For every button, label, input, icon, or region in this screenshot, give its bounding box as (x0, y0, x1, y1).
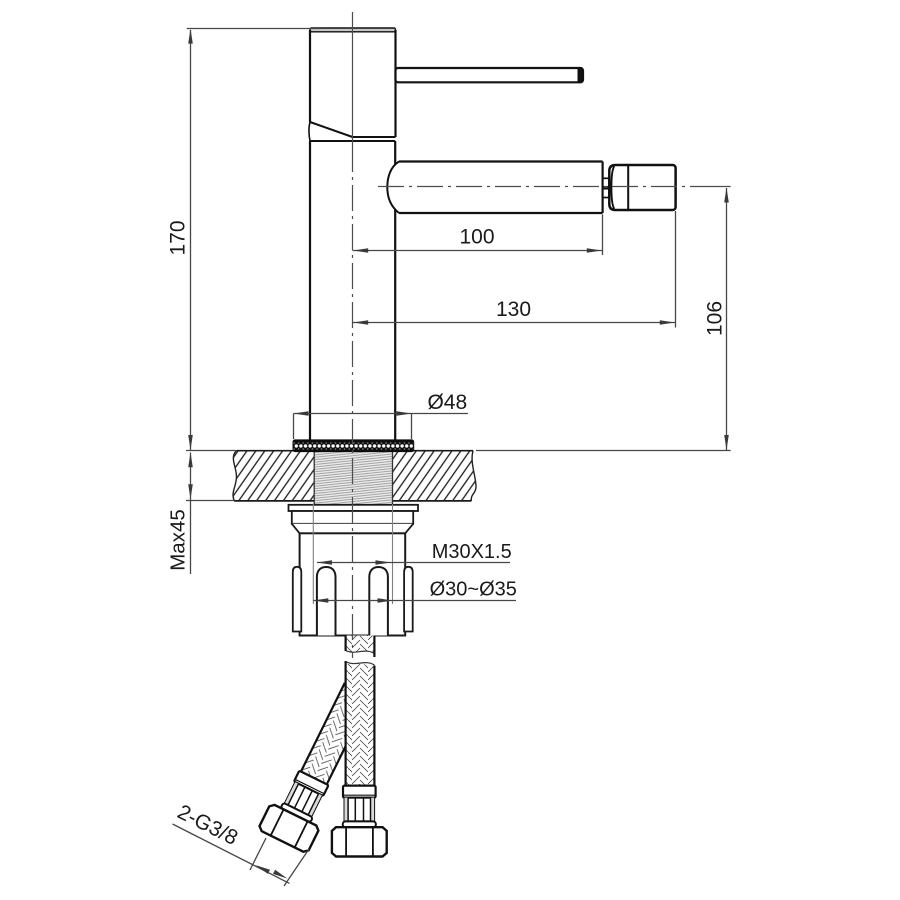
svg-text:100: 100 (459, 226, 494, 249)
svg-text:130: 130 (496, 298, 531, 321)
svg-text:Max45: Max45 (167, 509, 190, 571)
svg-text:Ø48: Ø48 (427, 391, 467, 414)
svg-text:106: 106 (704, 301, 727, 336)
svg-text:M30X1.5: M30X1.5 (432, 541, 512, 563)
svg-text:Ø30~Ø35: Ø30~Ø35 (430, 579, 517, 601)
svg-text:170: 170 (167, 220, 190, 255)
